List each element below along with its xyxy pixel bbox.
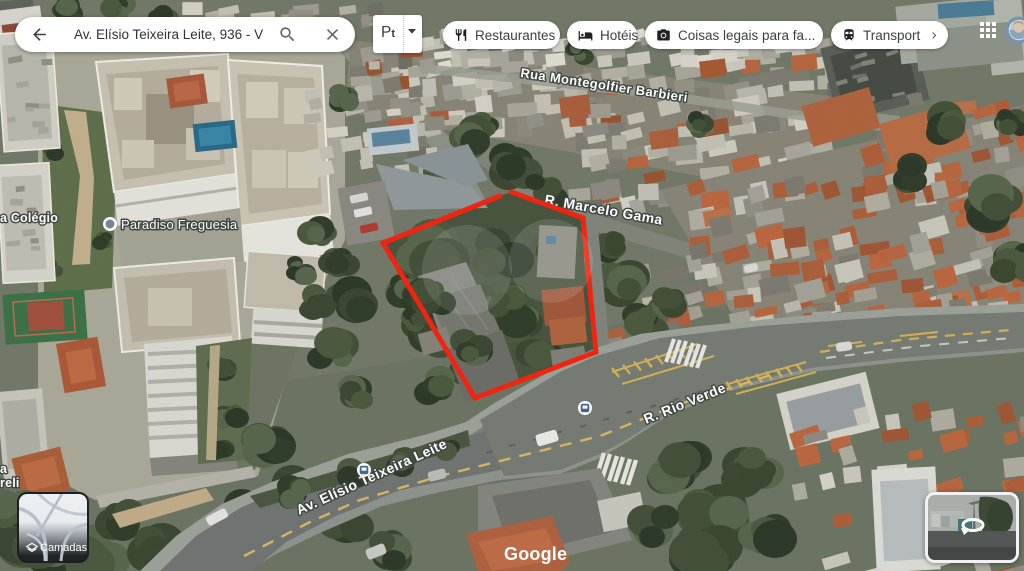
svg-text:Google: Google: [504, 544, 567, 564]
svg-text:a Colégio: a Colégio: [0, 211, 58, 225]
svg-text:a: a: [0, 462, 8, 476]
svg-text:reli: reli: [0, 476, 20, 490]
svg-text:Paradiso Freguesia: Paradiso Freguesia: [121, 217, 238, 232]
